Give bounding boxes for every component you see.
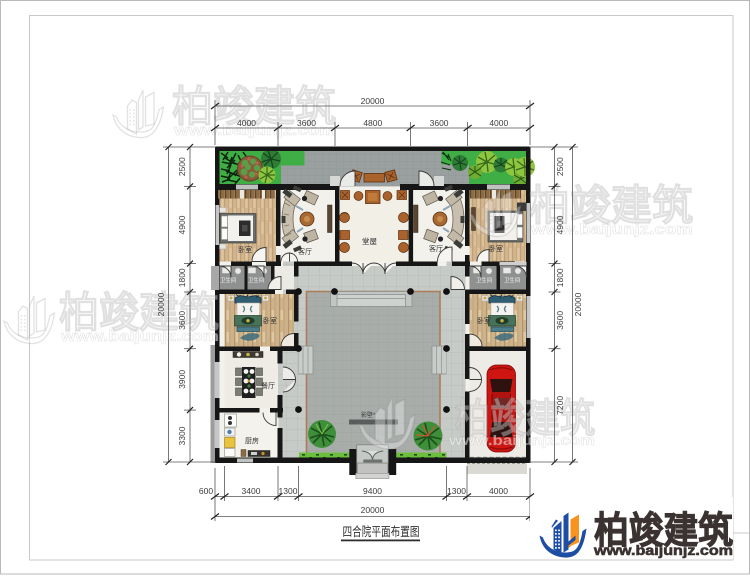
svg-text:客厅: 客厅 xyxy=(429,244,443,253)
svg-text:3600: 3600 xyxy=(430,118,449,128)
svg-text:卫生间: 卫生间 xyxy=(248,276,264,284)
svg-text:堂屋: 堂屋 xyxy=(362,236,377,246)
svg-text:www.baijunjz.com: www.baijunjz.com xyxy=(60,328,219,345)
svg-text:20000: 20000 xyxy=(361,505,385,515)
svg-text:4000: 4000 xyxy=(237,118,256,128)
svg-text:4900: 4900 xyxy=(555,215,565,234)
svg-text:1800: 1800 xyxy=(555,268,565,287)
svg-text:600: 600 xyxy=(199,486,213,496)
svg-text:客厅: 客厅 xyxy=(298,247,312,256)
svg-text:1300: 1300 xyxy=(279,486,298,496)
svg-text:卧室: 卧室 xyxy=(238,245,252,254)
svg-text:卧室: 卧室 xyxy=(263,316,277,325)
svg-text:卫生间: 卫生间 xyxy=(220,276,236,284)
svg-text:2500: 2500 xyxy=(177,157,187,176)
svg-text:9400: 9400 xyxy=(363,486,382,496)
svg-text:1800: 1800 xyxy=(177,268,187,287)
svg-text:www.baijunjz.com: www.baijunjz.com xyxy=(593,543,733,558)
svg-text:2500: 2500 xyxy=(555,157,565,176)
svg-text:餐厅: 餐厅 xyxy=(261,381,275,390)
svg-text:3400: 3400 xyxy=(242,486,261,496)
svg-text:3600: 3600 xyxy=(177,311,187,330)
svg-text:1300: 1300 xyxy=(447,486,466,496)
svg-text:7200: 7200 xyxy=(555,396,565,415)
svg-text:4900: 4900 xyxy=(177,215,187,234)
svg-text:卧室: 卧室 xyxy=(489,244,503,253)
svg-text:4000: 4000 xyxy=(489,486,508,496)
svg-text:20000: 20000 xyxy=(361,96,385,106)
svg-text:卫生间: 卫生间 xyxy=(504,276,520,284)
svg-text:20000: 20000 xyxy=(573,292,583,316)
svg-text:影壁*: 影壁* xyxy=(361,411,376,419)
svg-text:4000: 4000 xyxy=(489,118,508,128)
svg-text:3600: 3600 xyxy=(297,118,316,128)
svg-text:卫生间: 卫生间 xyxy=(476,276,492,284)
svg-text:3600: 3600 xyxy=(555,311,565,330)
svg-text:4800: 4800 xyxy=(363,118,382,128)
svg-text:四合院平面布置图: 四合院平面布置图 xyxy=(343,524,420,539)
svg-text:20000: 20000 xyxy=(156,292,166,316)
svg-text:3300: 3300 xyxy=(177,426,187,445)
svg-text:卧室: 卧室 xyxy=(477,316,491,325)
svg-text:3900: 3900 xyxy=(177,370,187,389)
svg-text:www.baijunjz.com: www.baijunjz.com xyxy=(448,432,595,448)
svg-text:厨房: 厨房 xyxy=(245,436,259,445)
